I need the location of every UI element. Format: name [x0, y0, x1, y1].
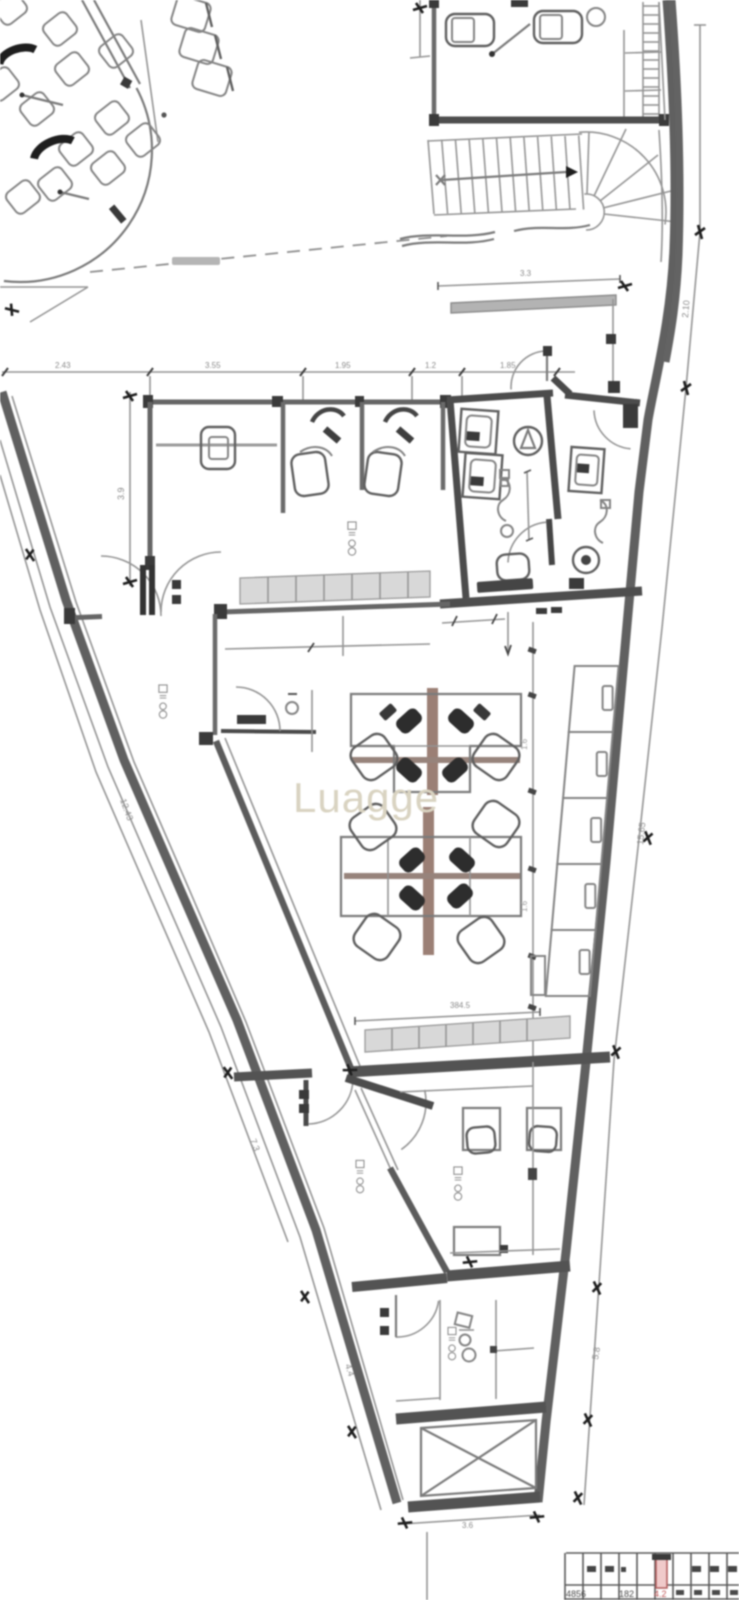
svg-text:1.95: 1.95 [335, 361, 351, 370]
svg-text:1.2: 1.2 [425, 361, 437, 370]
svg-text:384.5: 384.5 [450, 1001, 471, 1010]
svg-text:5.8: 5.8 [590, 1346, 602, 1360]
svg-text:4.2: 4.2 [654, 1589, 667, 1599]
svg-text:3.6: 3.6 [462, 1521, 474, 1530]
svg-text:4856: 4856 [566, 1589, 586, 1599]
svg-text:2.43: 2.43 [55, 361, 71, 370]
svg-text:1.6: 1.6 [520, 900, 529, 912]
svg-text:1.6: 1.6 [520, 738, 529, 750]
svg-text:182: 182 [619, 1589, 634, 1599]
svg-text:2.10: 2.10 [680, 300, 691, 318]
svg-text:3.3: 3.3 [520, 269, 532, 278]
svg-text:1.85: 1.85 [500, 361, 516, 370]
svg-text:3.55: 3.55 [205, 361, 221, 370]
svg-text:Luagge: Luagge [293, 774, 439, 821]
svg-text:3.9: 3.9 [116, 487, 126, 500]
